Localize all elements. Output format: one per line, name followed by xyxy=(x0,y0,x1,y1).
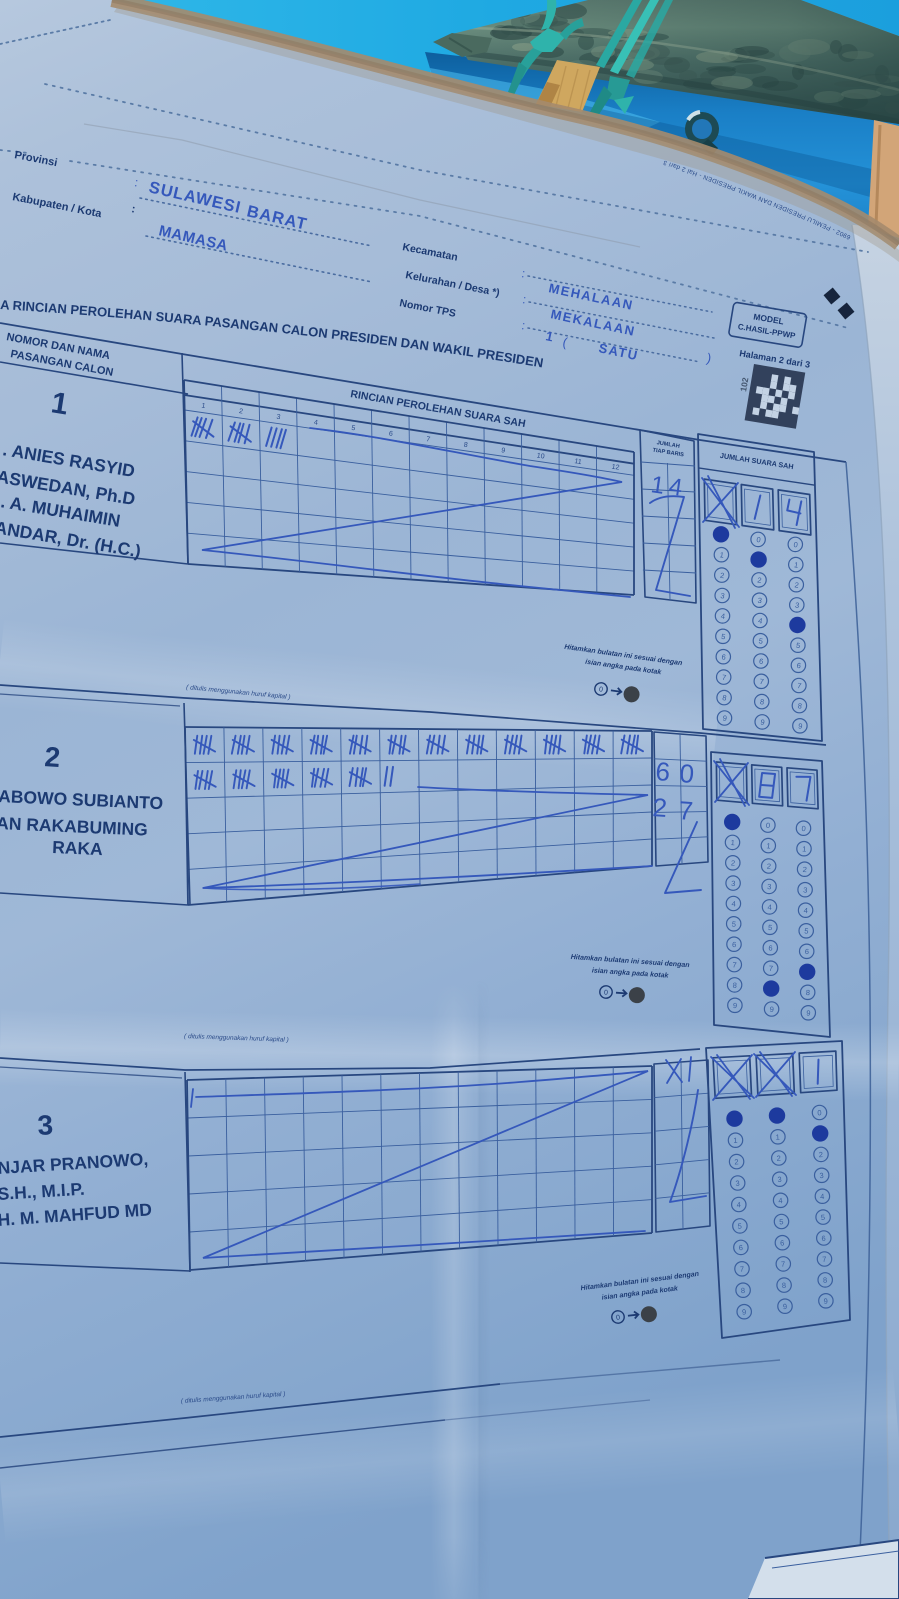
svg-text:5: 5 xyxy=(821,1213,826,1222)
svg-text:2: 2 xyxy=(819,1150,824,1159)
svg-text:1: 1 xyxy=(775,1133,780,1142)
svg-text:9: 9 xyxy=(733,1001,738,1010)
svg-text:4: 4 xyxy=(731,899,736,908)
svg-text:8: 8 xyxy=(823,1276,828,1285)
svg-text:6: 6 xyxy=(780,1238,785,1247)
svg-text:10: 10 xyxy=(536,452,545,460)
svg-text:9: 9 xyxy=(823,1297,828,1306)
svg-text:3: 3 xyxy=(735,1179,740,1188)
svg-text:5: 5 xyxy=(804,926,809,935)
svg-text:2: 2 xyxy=(652,792,669,823)
svg-text:6: 6 xyxy=(739,1243,744,1252)
svg-text:2: 2 xyxy=(734,1157,739,1166)
svg-text:7: 7 xyxy=(781,1260,786,1269)
svg-text:3: 3 xyxy=(819,1171,824,1180)
svg-text:5: 5 xyxy=(779,1217,784,1226)
svg-text:0: 0 xyxy=(766,821,771,830)
svg-text:1: 1 xyxy=(730,838,735,847)
svg-text:5: 5 xyxy=(768,923,773,932)
svg-text:0: 0 xyxy=(801,824,806,833)
svg-text:3: 3 xyxy=(37,1109,54,1141)
svg-text:6: 6 xyxy=(821,1234,826,1243)
svg-text:0: 0 xyxy=(604,989,608,996)
svg-text:8: 8 xyxy=(741,1286,746,1295)
svg-text:2: 2 xyxy=(731,858,736,867)
svg-text:8: 8 xyxy=(732,981,737,990)
svg-text:7: 7 xyxy=(822,1255,827,1264)
svg-text:2: 2 xyxy=(44,741,62,773)
svg-text:7: 7 xyxy=(732,960,737,969)
svg-text:1: 1 xyxy=(766,841,771,850)
svg-text:7: 7 xyxy=(769,964,774,973)
svg-text:9: 9 xyxy=(783,1302,788,1311)
svg-text:7: 7 xyxy=(740,1264,745,1273)
svg-text:2: 2 xyxy=(766,862,771,871)
svg-text:8: 8 xyxy=(782,1281,787,1290)
svg-text:4: 4 xyxy=(803,906,808,915)
svg-text:3: 3 xyxy=(731,879,736,888)
svg-text:5: 5 xyxy=(731,920,736,929)
svg-text:4: 4 xyxy=(767,903,772,912)
svg-text:4: 4 xyxy=(736,1200,741,1209)
svg-text:4: 4 xyxy=(820,1192,825,1201)
svg-text:2: 2 xyxy=(776,1154,781,1163)
svg-text:5: 5 xyxy=(737,1222,742,1231)
svg-text:1: 1 xyxy=(802,844,807,853)
svg-text:6: 6 xyxy=(768,943,773,952)
svg-text:3: 3 xyxy=(777,1175,782,1184)
svg-text:12: 12 xyxy=(611,464,620,472)
svg-text:6: 6 xyxy=(804,947,809,956)
svg-text:3: 3 xyxy=(767,882,772,891)
svg-text:0: 0 xyxy=(817,1108,822,1117)
svg-text:4: 4 xyxy=(778,1196,783,1205)
svg-text:9: 9 xyxy=(806,1008,811,1017)
svg-text:0: 0 xyxy=(679,758,696,789)
svg-text:3: 3 xyxy=(803,885,808,894)
svg-text:9: 9 xyxy=(742,1307,747,1316)
svg-text:6: 6 xyxy=(732,940,737,949)
svg-text:6: 6 xyxy=(655,756,672,787)
svg-text:7: 7 xyxy=(678,795,695,826)
svg-text:11: 11 xyxy=(574,458,582,466)
svg-text:8: 8 xyxy=(805,988,810,997)
svg-text:RAKA: RAKA xyxy=(52,837,104,859)
svg-text:2: 2 xyxy=(802,865,807,874)
svg-text:1: 1 xyxy=(733,1136,738,1145)
svg-text:9: 9 xyxy=(769,1005,774,1014)
